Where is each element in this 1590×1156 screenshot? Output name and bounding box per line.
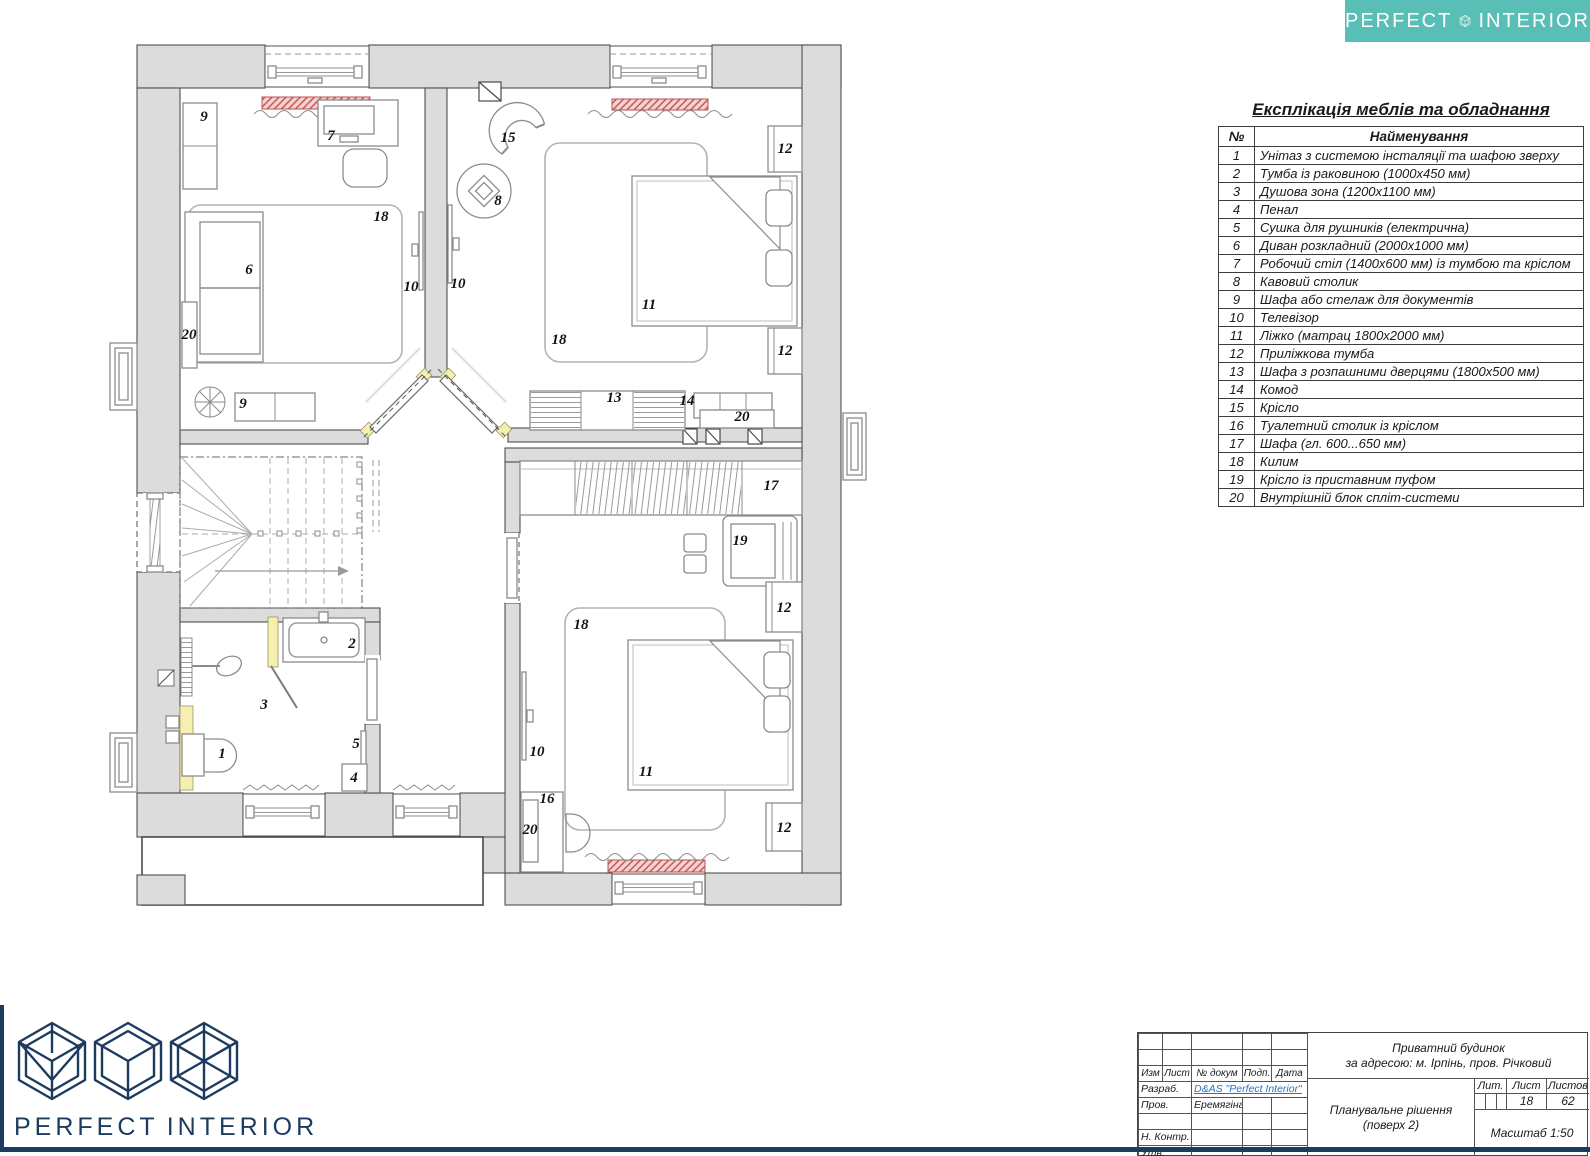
legend-row-name: Пенал — [1255, 201, 1584, 219]
pillow — [766, 250, 792, 286]
bottom-brand-logo: PERFECTINTERIOR — [14, 1018, 244, 1142]
plan-label-2: 2 — [347, 636, 356, 652]
plan-label-12: 12 — [778, 343, 794, 359]
legend-row-number: 19 — [1219, 471, 1255, 489]
plan-label-12: 12 — [777, 820, 793, 836]
legend-row-number: 10 — [1219, 309, 1255, 327]
titleblock-row-label: Н. Контр. — [1139, 1130, 1192, 1146]
legend-row-number: 18 — [1219, 453, 1255, 471]
legend-row-name: Шафа (гл. 600...650 мм) — [1255, 435, 1584, 453]
plan-label-12: 12 — [777, 600, 793, 616]
legend-row-number: 9 — [1219, 291, 1255, 309]
cube-logo-icon — [1459, 1, 1471, 41]
titleblock-col-header: Дата — [1272, 1066, 1308, 1082]
legend-row: 19Крісло із приставним пуфом — [1219, 471, 1584, 489]
legend-row-number: 12 — [1219, 345, 1255, 363]
legend-row-number: 13 — [1219, 363, 1255, 381]
titleblock-row: Н. Контр. — [1139, 1130, 1308, 1146]
legend-row-number: 8 — [1219, 273, 1255, 291]
titleblock-row — [1139, 1114, 1308, 1130]
titleblock-row-value: Еремягіна І.О. — [1192, 1098, 1243, 1114]
bathroom-door — [365, 655, 380, 724]
plan-label-19: 19 — [733, 533, 749, 549]
legend-row-name: Крісло із приставним пуфом — [1255, 471, 1584, 489]
sheets-header: Листов — [1546, 1079, 1589, 1094]
legend-row-number: 20 — [1219, 489, 1255, 507]
cube-icon-2 — [95, 1023, 161, 1099]
legend-row: 8Кавовий столик — [1219, 273, 1584, 291]
pillow — [766, 190, 792, 226]
title-block: ИзмЛист№ докумПодп.ДатаРазраб.D&AS "Perf… — [1137, 1032, 1588, 1156]
legend-row-number: 17 — [1219, 435, 1255, 453]
radiator-bedroom3 — [608, 860, 705, 872]
wall-switch-box — [158, 670, 174, 686]
bed-11 — [632, 176, 797, 326]
window-top-left — [265, 46, 369, 87]
titleblock-row-label: Разраб. — [1139, 1082, 1192, 1098]
legend-row-name: Робочий стіл (1400х600 мм) із тумбою та … — [1255, 255, 1584, 273]
legend-row: 13Шафа з розпашними дверцями (1800х500 м… — [1219, 363, 1584, 381]
legend-row-number: 7 — [1219, 255, 1255, 273]
window-top-right — [610, 46, 712, 87]
titleblock-signature-table: ИзмЛист№ докумПодп.ДатаРазраб.D&AS "Perf… — [1138, 1033, 1308, 1156]
legend-row: 4Пенал — [1219, 201, 1584, 219]
legend-row-name: Кавовий столик — [1255, 273, 1584, 291]
sheets-total: 62 — [1546, 1094, 1589, 1110]
legend-row-name: Диван розкладний (2000х1000 мм) — [1255, 237, 1584, 255]
titleblock-row-label — [1139, 1114, 1192, 1130]
legend-table: № Найменування 1Унітаз з системою інстал… — [1218, 126, 1584, 507]
titleblock-row-value — [1192, 1130, 1243, 1146]
legend-row-name: Тумба із раковиною (1000х450 мм) — [1255, 165, 1584, 183]
legend-row-name: Шафа з розпашними дверцями (1800х500 мм) — [1255, 363, 1584, 381]
plan-label-18: 18 — [552, 332, 568, 348]
drawing-sheet: 9715128186101011201812131492017191218231… — [0, 0, 1590, 1156]
legend-row: 11Ліжко (матрац 1800х2000 мм) — [1219, 327, 1584, 345]
sheet-header: Лист — [1506, 1079, 1546, 1094]
titleblock-row: Разраб.D&AS "Perfect Interior" — [1139, 1082, 1308, 1098]
cube-logo-row — [14, 1018, 242, 1104]
legend-row-number: 2 — [1219, 165, 1255, 183]
legend-col-name: Найменування — [1255, 127, 1584, 147]
legend-row: 17Шафа (гл. 600...650 мм) — [1219, 435, 1584, 453]
legend-row: 15Крісло — [1219, 399, 1584, 417]
bottom-brand-text: PERFECTINTERIOR — [14, 1113, 244, 1142]
legend-row: 14Комод — [1219, 381, 1584, 399]
window-left-lower — [110, 733, 137, 792]
project-name-cell: Приватний будинок за адресою: м. Ірпінь,… — [1307, 1033, 1589, 1079]
plan-label-11: 11 — [642, 297, 656, 313]
legend-row-name: Туалетний столик із кріслом — [1255, 417, 1584, 435]
plan-label-9: 9 — [239, 396, 247, 412]
plan-label-8: 8 — [494, 193, 502, 209]
legend-row-number: 15 — [1219, 399, 1255, 417]
window-stair-recess — [137, 493, 180, 572]
plan-label-10: 10 — [530, 744, 546, 760]
bedroom3-door — [505, 533, 520, 603]
legend-row: 2Тумба із раковиною (1000х450 мм) — [1219, 165, 1584, 183]
legend-row-name: Телевізор — [1255, 309, 1584, 327]
legend-col-num: № — [1219, 127, 1255, 147]
lit-cells — [1474, 1094, 1506, 1110]
pillow — [764, 652, 790, 688]
plan-label-16: 16 — [540, 791, 556, 807]
plan-label-1: 1 — [218, 746, 226, 762]
window-right — [843, 413, 866, 480]
wardrobe-17 — [520, 461, 802, 515]
legend-row-name: Сушка для рушників (електрична) — [1255, 219, 1584, 237]
furniture-legend: Експлікація меблів та обладнання № Найме… — [1218, 100, 1584, 507]
legend-row: 3Душова зона (1200х1100 мм) — [1219, 183, 1584, 201]
titleblock-col-header: № докум — [1192, 1066, 1243, 1082]
cube-icon-3 — [171, 1023, 237, 1099]
top-brand-banner: PERFECT INTERIOR — [1345, 0, 1590, 42]
legend-row: 16Туалетний столик із кріслом — [1219, 417, 1584, 435]
legend-row: 7Робочий стіл (1400х600 мм) із тумбою та… — [1219, 255, 1584, 273]
plan-label-10: 10 — [451, 276, 467, 292]
plan-label-20: 20 — [181, 327, 198, 343]
sheet-number: 18 — [1506, 1094, 1546, 1110]
legend-row: 1Унітаз з системою інсталяції та шафою з… — [1219, 147, 1584, 165]
sheet-frame-bottom — [0, 1147, 1590, 1152]
shelf-9-bottom — [235, 393, 315, 421]
legend-row-name: Крісло — [1255, 399, 1584, 417]
legend-row-name: Шафа або стелаж для документів — [1255, 291, 1584, 309]
plan-label-18: 18 — [374, 209, 390, 225]
sheet-frame-left — [0, 1005, 4, 1152]
legend-row-number: 16 — [1219, 417, 1255, 435]
legend-row: 12Приліжкова тумба — [1219, 345, 1584, 363]
legend-row-number: 14 — [1219, 381, 1255, 399]
plan-label-3: 3 — [259, 697, 268, 713]
legend-row-name: Ліжко (матрац 1800х2000 мм) — [1255, 327, 1584, 345]
cube-icon-1 — [19, 1023, 85, 1099]
plan-label-4: 4 — [349, 770, 358, 786]
legend-row: 5Сушка для рушників (електрична) — [1219, 219, 1584, 237]
brand-word-interior: INTERIOR — [1478, 10, 1590, 33]
titleblock-col-header: Подп. — [1243, 1066, 1272, 1082]
titleblock-row-label: Пров. — [1139, 1098, 1192, 1114]
desk-chair — [343, 149, 387, 187]
legend-row-name: Внутрішній блок спліт-системи — [1255, 489, 1584, 507]
legend-row-name: Комод — [1255, 381, 1584, 399]
legend-row-number: 3 — [1219, 183, 1255, 201]
plan-label-13: 13 — [607, 390, 623, 406]
legend-row-number: 4 — [1219, 201, 1255, 219]
legend-row: 20Внутрішній блок спліт-системи — [1219, 489, 1584, 507]
plan-label-20: 20 — [734, 409, 751, 425]
legend-row: 6Диван розкладний (2000х1000 мм) — [1219, 237, 1584, 255]
titleblock-col-header: Изм — [1139, 1066, 1163, 1082]
plan-label-20: 20 — [522, 822, 539, 838]
legend-row-name: Унітаз з системою інсталяції та шафою зв… — [1255, 147, 1584, 165]
fan-symbol — [195, 387, 225, 417]
legend-row: 9Шафа або стелаж для документів — [1219, 291, 1584, 309]
legend-title: Експлікація меблів та обладнання — [1218, 100, 1584, 120]
window-bottom-bedroom3 — [612, 874, 705, 904]
legend-row: 10Телевізор — [1219, 309, 1584, 327]
plan-label-11: 11 — [639, 764, 653, 780]
plan-label-9: 9 — [200, 109, 208, 125]
plan-label-5: 5 — [352, 736, 360, 752]
armchair-19 — [723, 516, 797, 586]
titleblock-col-header: Лист — [1163, 1066, 1192, 1082]
legend-row-number: 1 — [1219, 147, 1255, 165]
plan-label-17: 17 — [764, 478, 780, 494]
legend-row-name: Приліжкова тумба — [1255, 345, 1584, 363]
window-left-upper — [110, 343, 137, 410]
lit-header: Лит. — [1474, 1079, 1506, 1094]
radiator-room2 — [612, 99, 708, 110]
legend-row-number: 6 — [1219, 237, 1255, 255]
doc-title-cell: Планувальне рішення (поверх 2) — [1307, 1079, 1474, 1156]
plan-label-14: 14 — [680, 393, 696, 409]
legend-row: 18Килим — [1219, 453, 1584, 471]
brand-word-perfect: PERFECT — [1345, 10, 1452, 33]
terrace — [137, 837, 483, 905]
titleblock-org-link[interactable]: D&AS "Perfect Interior" — [1192, 1082, 1308, 1098]
plan-label-10: 10 — [404, 279, 420, 295]
pillow — [764, 696, 790, 732]
plan-label-7: 7 — [327, 128, 335, 144]
legend-row-name: Душова зона (1200х1100 мм) — [1255, 183, 1584, 201]
plan-label-18: 18 — [574, 617, 590, 633]
titleblock-row-value — [1192, 1114, 1243, 1130]
plan-label-12: 12 — [778, 141, 794, 157]
legend-row-number: 11 — [1219, 327, 1255, 345]
titleblock-row: Пров.Еремягіна І.О. — [1139, 1098, 1308, 1114]
legend-row-number: 5 — [1219, 219, 1255, 237]
legend-row-name: Килим — [1255, 453, 1584, 471]
plan-label-15: 15 — [501, 130, 517, 146]
plan-label-6: 6 — [245, 262, 253, 278]
